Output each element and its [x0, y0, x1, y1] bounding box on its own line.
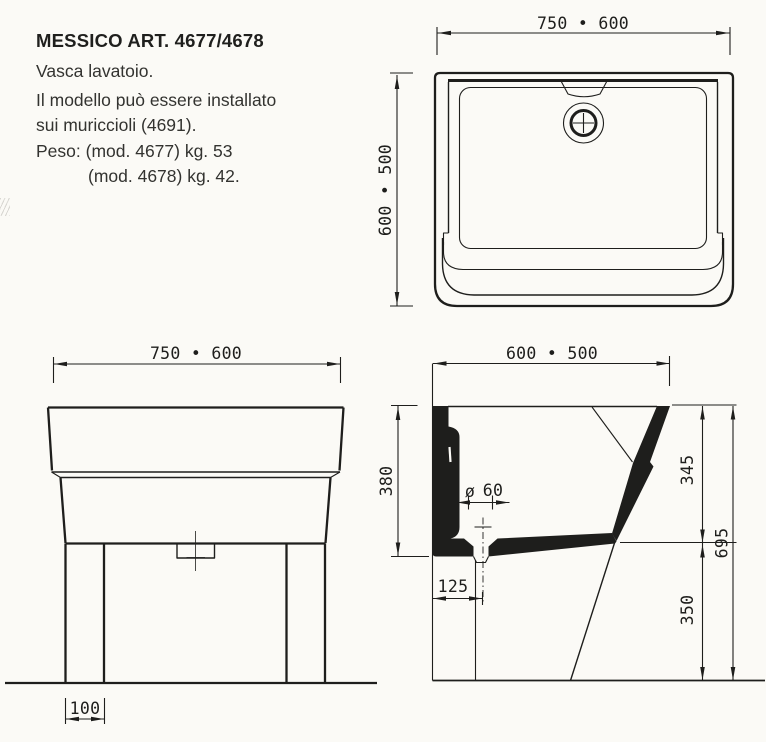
section-rim-to-outlet-dim: 345 [678, 455, 697, 486]
front-view-width-dim: 750 • 600 [150, 344, 242, 363]
section-drain-diameter-dim: 60 [483, 481, 503, 500]
section-width-dim: 600 • 500 [506, 344, 598, 363]
section-outlet-to-floor-dim: 350 [678, 595, 697, 626]
technical-drawing: 750 • 600 600 • 500 [0, 0, 766, 742]
front-view-leg-dim: 100 [70, 699, 101, 718]
plan-outer-outline [435, 73, 733, 306]
section-front-wall-cut [612, 406, 670, 541]
section-total-height-dim: 695 [713, 528, 732, 559]
top-view-depth-dim: 600 • 500 [376, 144, 395, 236]
section-pedestal-edge [571, 543, 615, 681]
section-slab-cut [489, 533, 617, 557]
front-left-leg [66, 544, 105, 683]
section-view: 600 • 500 380 [377, 344, 765, 681]
drain-plug [564, 103, 604, 143]
section-basin-depth-dim: 380 [377, 466, 396, 497]
top-view: 750 • 600 600 • 500 [376, 14, 733, 306]
section-drain-symbol: ø [465, 482, 475, 501]
section-drain-offset-dim: 125 [438, 577, 469, 596]
overflow-recess [561, 81, 607, 97]
top-view-width-dim: 750 • 600 [537, 14, 629, 33]
front-right-leg [287, 544, 326, 683]
catalog-sheet: MESSICO ART. 4677/4678 Vasca lavatoio. I… [0, 0, 766, 742]
front-view: 750 • 600 100 [5, 344, 377, 724]
